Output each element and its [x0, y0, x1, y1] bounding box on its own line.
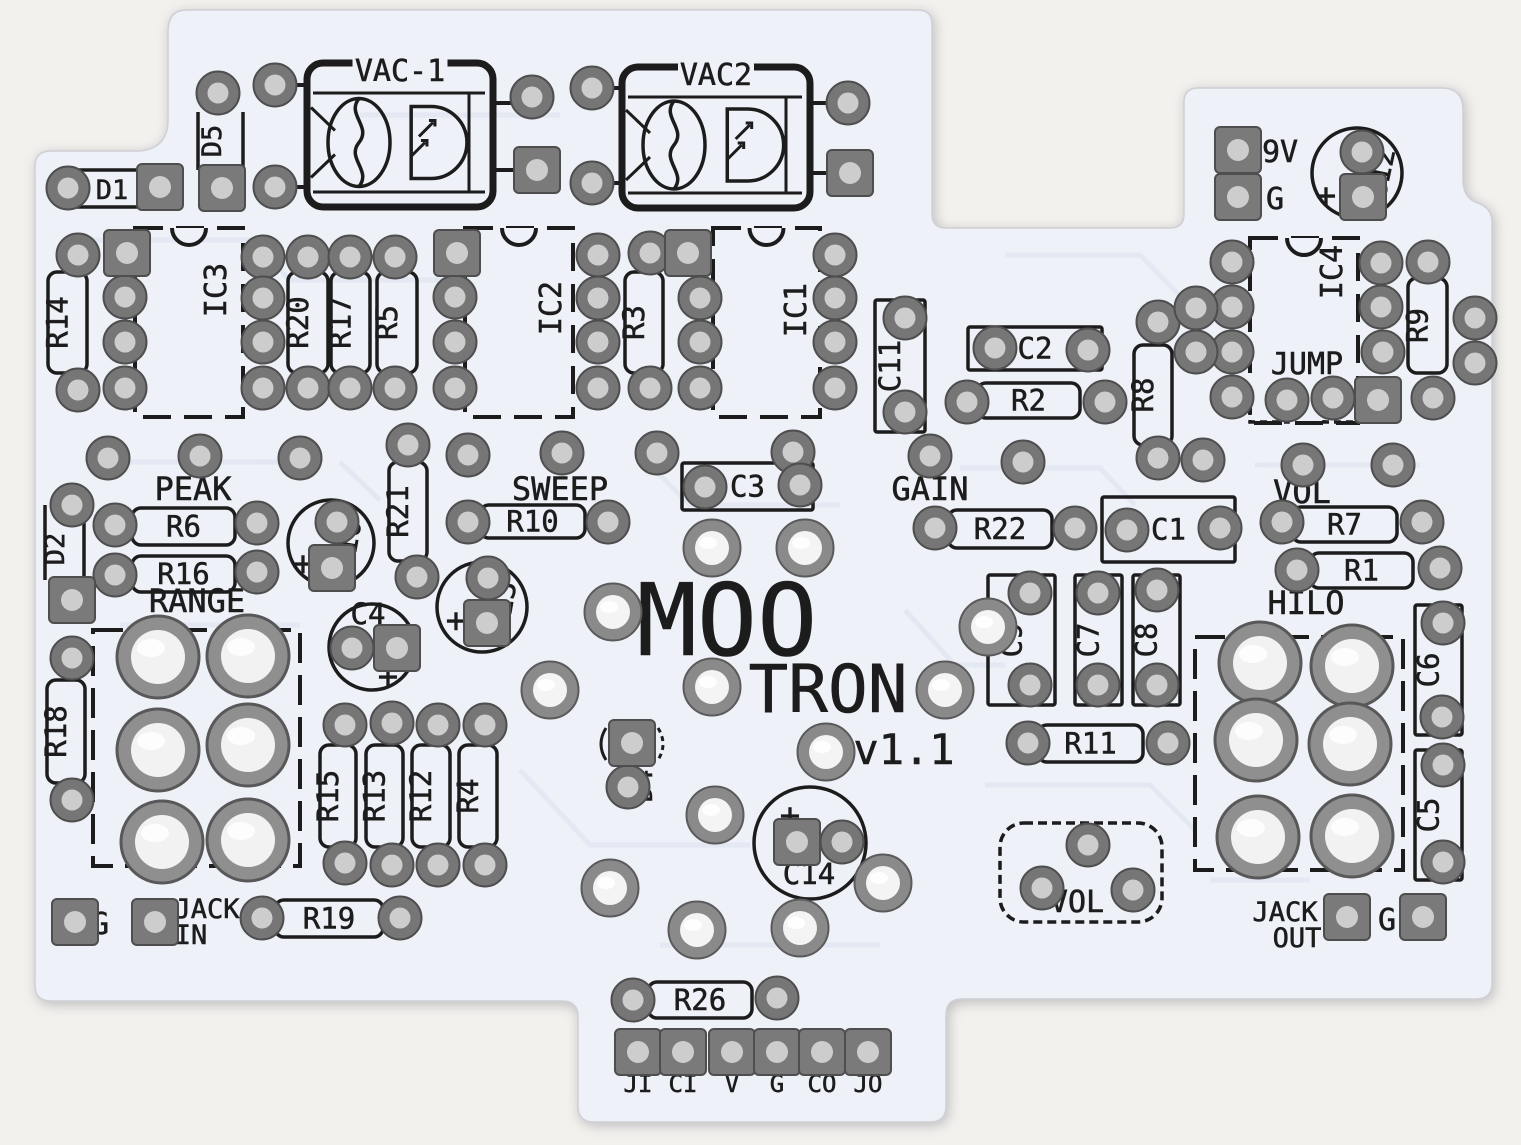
- pad-hole: [445, 287, 466, 308]
- pot-pad: [1217, 796, 1299, 878]
- pad-hole: [398, 435, 419, 456]
- pad-hole: [247, 562, 268, 583]
- pad-hole: [407, 567, 428, 588]
- pad-round: [612, 979, 655, 1022]
- pad-hole: [1233, 636, 1287, 690]
- pad-hole: [1227, 186, 1249, 208]
- resistor-label-R13: R13: [358, 770, 392, 822]
- pad-round: [1407, 241, 1450, 284]
- ic-label-IC1: IC1: [779, 283, 814, 337]
- pad-round: [464, 704, 507, 747]
- pad-round: [1341, 131, 1384, 174]
- pad-round: [1009, 572, 1052, 615]
- pad-square: [1340, 174, 1386, 220]
- pad-round: [1422, 602, 1465, 645]
- pad-hole: [1325, 809, 1379, 863]
- pad-highlight: [787, 917, 805, 929]
- resistor-label-R19: R19: [303, 902, 355, 936]
- pad-square: [464, 600, 510, 646]
- pad-round: [104, 321, 147, 364]
- pad-hole: [1231, 810, 1285, 864]
- pad-hole: [265, 177, 286, 198]
- pad-hole: [68, 245, 89, 266]
- pad-round: [279, 437, 322, 480]
- pad-round: [1002, 441, 1045, 484]
- pad-round: [827, 82, 870, 125]
- pad-square: [754, 1029, 800, 1075]
- resistor-label-R22: R22: [974, 512, 1026, 546]
- pad-round: [1084, 381, 1127, 424]
- pad-highlight: [227, 638, 255, 656]
- pad-round: [679, 277, 722, 320]
- pad-round: [329, 236, 372, 279]
- pad-round: [1211, 241, 1254, 284]
- pot-pad: [1311, 795, 1393, 877]
- pad-hole: [475, 855, 496, 876]
- pad-square: [309, 545, 355, 591]
- pad-highlight: [702, 804, 720, 816]
- pad-square: [434, 230, 480, 276]
- pad-round: [684, 466, 727, 509]
- pad-highlight: [137, 639, 165, 657]
- resistor-label-R5: R5: [370, 305, 404, 340]
- pad-square: [1215, 174, 1261, 220]
- pad-round: [884, 391, 927, 434]
- pad-hole: [428, 855, 449, 876]
- pad-highlight: [684, 919, 702, 931]
- pad-hole: [445, 378, 466, 399]
- pot-pad: [1215, 699, 1297, 781]
- pad-round: [242, 321, 285, 364]
- pad-hole: [98, 448, 119, 469]
- pad-hole: [1013, 452, 1034, 473]
- resistor-label-R8: R8: [1126, 378, 1160, 413]
- pad-hole: [766, 1041, 788, 1063]
- ic-label-IC3: IC3: [199, 263, 234, 317]
- pad-square: [660, 1029, 706, 1075]
- pad-hole: [825, 245, 846, 266]
- pad-hole: [690, 288, 711, 309]
- pad-hole: [428, 715, 449, 736]
- pad-hole: [144, 911, 166, 933]
- pad-round: [1007, 722, 1050, 765]
- pad-round: [47, 167, 90, 210]
- pad-highlight: [141, 824, 169, 842]
- pad-hole: [1383, 455, 1404, 476]
- capacitor-label-C11: C11: [873, 340, 907, 392]
- capacitor-label-C6: C6: [1412, 653, 1446, 688]
- pcb-svg: VAC-1VAC2IC3IC2IC1IC4R14R20R17R5R3R8R9R2…: [0, 0, 1521, 1145]
- pad-round: [571, 162, 614, 205]
- pad-hole: [1423, 388, 1444, 409]
- pad-square: [137, 164, 183, 210]
- pad-round: [1422, 841, 1465, 884]
- pad-hole: [920, 446, 941, 467]
- pad-round: [1422, 744, 1465, 787]
- pad-round: [1282, 444, 1325, 487]
- pad-hole: [1147, 580, 1168, 601]
- pad-hole: [1432, 707, 1453, 728]
- pad-round: [679, 321, 722, 364]
- pad-hole: [221, 629, 275, 683]
- pad-round: [1136, 664, 1179, 707]
- pad-hole: [647, 443, 668, 464]
- pad-hole: [1227, 139, 1249, 161]
- pad-hole: [321, 557, 343, 579]
- pad-hole: [290, 448, 311, 469]
- pad-hole: [131, 723, 185, 777]
- pad-round: [1137, 301, 1180, 344]
- pad-round: [629, 367, 672, 410]
- pad-round: [607, 766, 650, 809]
- resistor-label-R21: R21: [381, 485, 415, 537]
- text-SWEEP: SWEEP: [512, 470, 608, 508]
- pad-highlight: [597, 877, 615, 889]
- pad-hole: [1433, 613, 1454, 634]
- pad-round: [1360, 286, 1403, 329]
- resistor-label-R10: R10: [506, 505, 558, 539]
- pad-highlight: [932, 679, 950, 691]
- pad-round: [756, 977, 799, 1020]
- pad-round: [1199, 507, 1242, 550]
- pad-round: [236, 502, 279, 545]
- pad-round: [946, 381, 989, 424]
- pad-round: [464, 844, 507, 887]
- pad-hole: [1065, 518, 1086, 539]
- pad-square: [1215, 127, 1261, 173]
- pad-hole: [298, 378, 319, 399]
- pad-hole: [211, 177, 233, 199]
- pad-hole: [105, 515, 126, 536]
- resistor-label-R6: R6: [166, 510, 201, 544]
- resistor-label-R26: R26: [674, 983, 726, 1017]
- pad-square: [827, 150, 873, 196]
- pad-round: [1054, 507, 1097, 550]
- pad-hole: [811, 1041, 833, 1063]
- pad-hole: [695, 477, 716, 498]
- pad-round: [197, 72, 240, 115]
- pad-hole: [598, 512, 619, 533]
- pad-hole: [327, 512, 348, 533]
- pad-hole: [1352, 186, 1374, 208]
- pad-round: [434, 276, 477, 319]
- capacitor-label-C1: C1: [1151, 513, 1186, 547]
- ic-pin1-notch: [502, 228, 536, 245]
- pad-highlight: [975, 616, 993, 628]
- pad-hole: [1117, 520, 1138, 541]
- pad-hole: [783, 442, 804, 463]
- pad-hole: [1018, 733, 1039, 754]
- pad-hole: [62, 790, 83, 811]
- pad-round: [1021, 867, 1064, 910]
- pad-hole: [857, 1041, 879, 1063]
- pad-round: [417, 844, 460, 887]
- pad-square: [615, 1029, 661, 1075]
- diode-label-D2: D2: [40, 533, 71, 566]
- pad-round: [1175, 331, 1218, 374]
- pad-hole: [1078, 340, 1099, 361]
- pad-hole: [382, 855, 403, 876]
- pad-hole: [61, 589, 83, 611]
- pad-round: [571, 67, 614, 110]
- resistor-label-R17: R17: [324, 296, 358, 348]
- pad-highlight: [137, 732, 165, 750]
- pad-square: [609, 720, 655, 766]
- pad-highlight: [1235, 722, 1263, 740]
- pad-highlight: [699, 537, 717, 549]
- pad-round: [1211, 376, 1254, 419]
- pad-square: [199, 165, 245, 211]
- pad-hole: [386, 637, 408, 659]
- opto-label-VAC2: VAC2: [680, 58, 752, 93]
- pad-bright: [684, 520, 741, 577]
- pad-hole: [1336, 906, 1358, 928]
- pad-hole: [1433, 755, 1454, 776]
- pad-round: [417, 704, 460, 747]
- pot-pad: [207, 704, 289, 786]
- pad-hole: [1095, 392, 1116, 413]
- resistor-label-R14: R14: [41, 296, 75, 348]
- pad-square: [709, 1029, 755, 1075]
- pad-round: [1401, 501, 1444, 544]
- pad-round: [1362, 331, 1405, 374]
- pad-hole: [340, 378, 361, 399]
- pad-round: [974, 327, 1017, 370]
- pad-round: [1175, 287, 1218, 330]
- pad-round: [331, 627, 374, 670]
- plus-polarity-mark: +: [1316, 176, 1336, 216]
- pot-pad: [117, 616, 199, 698]
- pad-hole: [623, 990, 644, 1011]
- pad-hole: [68, 380, 89, 401]
- pad-square: [374, 625, 420, 671]
- pad-hole: [1272, 512, 1293, 533]
- pad-round: [636, 432, 679, 475]
- pad-round: [94, 504, 137, 547]
- pad-hole: [62, 495, 83, 516]
- pad-hole: [640, 378, 661, 399]
- pad-round: [387, 424, 430, 467]
- pad-round: [541, 432, 584, 475]
- pad-hole: [1412, 512, 1433, 533]
- pad-hole: [190, 446, 211, 467]
- resistor-label-R7: R7: [1327, 508, 1362, 542]
- text-OUT: OUT: [1273, 923, 1322, 954]
- capacitor-label-C2: C2: [1018, 332, 1053, 366]
- pad-round: [577, 367, 620, 410]
- pad-hole: [116, 242, 138, 264]
- pad-hole: [838, 93, 859, 114]
- text-G: G: [1266, 182, 1284, 217]
- pad-round: [587, 501, 630, 544]
- pad-hole: [478, 568, 499, 589]
- pad-hole: [767, 988, 788, 1009]
- pad-round: [821, 821, 864, 864]
- pad-round: [104, 276, 147, 319]
- pad-round: [1112, 869, 1155, 912]
- pot-pad: [1311, 625, 1393, 707]
- pad-hole: [208, 83, 229, 104]
- pad-hole: [1371, 297, 1392, 318]
- pad-round: [371, 702, 414, 745]
- pad-round: [242, 236, 285, 279]
- pad-hole: [839, 162, 861, 184]
- pad-hole: [895, 308, 916, 329]
- pad-hole: [390, 908, 411, 929]
- pad-round: [1067, 824, 1110, 867]
- pad-hole: [221, 718, 275, 772]
- pad-hole: [446, 242, 468, 264]
- pad-round: [87, 437, 130, 480]
- pad-hole: [985, 338, 1006, 359]
- pad-round: [1454, 342, 1497, 385]
- pad-round: [242, 367, 285, 410]
- pad-hole: [1222, 252, 1243, 273]
- pad-round: [577, 277, 620, 320]
- pad-hole: [1418, 252, 1439, 273]
- pad-highlight: [792, 537, 810, 549]
- pad-hole: [690, 378, 711, 399]
- pad-hole: [1158, 733, 1179, 754]
- pad-highlight: [1237, 819, 1265, 837]
- pad-hole: [588, 378, 609, 399]
- pad-round: [1454, 297, 1497, 340]
- pad-hole: [1325, 639, 1379, 693]
- pad-round: [814, 277, 857, 320]
- pad-hole: [382, 713, 403, 734]
- pad-highlight: [1239, 645, 1267, 663]
- pad-hole: [265, 75, 286, 96]
- pad-highlight: [227, 822, 255, 840]
- pad-hole: [1088, 583, 1109, 604]
- resistor-label-R4: R4: [451, 779, 485, 814]
- pad-round: [1067, 329, 1110, 372]
- resistor-label-R20: R20: [281, 296, 315, 348]
- pad-round: [254, 166, 297, 209]
- pad-hole: [582, 173, 603, 194]
- pad-bright: [777, 520, 834, 577]
- resistor-label-R11: R11: [1064, 727, 1116, 761]
- pad-round: [1372, 444, 1415, 487]
- pad-hole: [618, 777, 639, 798]
- pad-hole: [253, 247, 274, 268]
- resistor-label-R1: R1: [1344, 554, 1379, 588]
- pad-hole: [1293, 455, 1314, 476]
- ic-label-IC2: IC2: [534, 281, 569, 335]
- pad-hole: [298, 247, 319, 268]
- pad-hole: [131, 630, 185, 684]
- pad-bright: [855, 855, 912, 912]
- pad-hole: [253, 378, 274, 399]
- pad-hole: [252, 908, 273, 929]
- pad-bright: [772, 900, 829, 957]
- pad-bright: [917, 662, 974, 719]
- pad-hole: [1277, 390, 1298, 411]
- pad-hole: [1430, 558, 1451, 579]
- pad-hole: [115, 287, 136, 308]
- pad-round: [94, 554, 137, 597]
- pad-round: [434, 367, 477, 410]
- pad-round: [1077, 572, 1120, 615]
- pad-hole: [64, 911, 86, 933]
- pad-hole: [1323, 388, 1344, 409]
- pad-round: [51, 484, 94, 527]
- pad-round: [1360, 242, 1403, 285]
- pad-square: [49, 577, 95, 623]
- text-TRON: TRON: [749, 651, 908, 728]
- pad-round: [1421, 696, 1464, 739]
- pad-hole: [385, 378, 406, 399]
- pad-hole: [1078, 835, 1099, 856]
- pad-round: [1276, 549, 1319, 592]
- pad-round: [814, 234, 857, 277]
- pad-round: [241, 897, 284, 940]
- pad-hole: [135, 815, 189, 869]
- pad-round: [1182, 439, 1225, 482]
- resistor-label-R12: R12: [404, 770, 438, 822]
- pad-hole: [247, 513, 268, 534]
- ic-pin1-notch: [172, 228, 206, 245]
- pcb-scan: VAC-1VAC2IC3IC2IC1IC4R14R20R17R5R3R8R9R2…: [0, 0, 1521, 1145]
- pad-hole: [1148, 312, 1169, 333]
- pad-round: [577, 234, 620, 277]
- pad-round: [324, 842, 367, 885]
- pot-pad: [121, 801, 203, 883]
- pad-round: [467, 557, 510, 600]
- pad-hole: [62, 648, 83, 669]
- pad-hole: [1323, 717, 1377, 771]
- pad-round: [1147, 722, 1190, 765]
- pad-highlight: [600, 601, 618, 613]
- pad-hole: [1433, 852, 1454, 873]
- pad-hole: [115, 332, 136, 353]
- pad-hole: [552, 443, 573, 464]
- pad-hole: [1147, 675, 1168, 696]
- pad-hole: [672, 1041, 694, 1063]
- text-v1.1: v1.1: [853, 725, 954, 774]
- pad-hole: [1222, 387, 1243, 408]
- pad-hole: [335, 715, 356, 736]
- pad-hole: [582, 78, 603, 99]
- pad-round: [1412, 377, 1455, 420]
- pad-bright: [687, 787, 744, 844]
- pad-square: [1400, 894, 1446, 940]
- pad-round: [814, 367, 857, 410]
- pot-pad: [207, 799, 289, 881]
- pad-round: [287, 236, 330, 279]
- pad-round: [447, 501, 490, 544]
- pad-hole: [253, 288, 274, 309]
- pad-round: [679, 367, 722, 410]
- pad-square: [845, 1029, 891, 1075]
- pad-round: [329, 367, 372, 410]
- pad-round: [396, 556, 439, 599]
- pad-highlight: [1329, 726, 1357, 744]
- pad-bright: [684, 659, 741, 716]
- pad-round: [1419, 547, 1462, 590]
- pad-hole: [1032, 878, 1053, 899]
- pad-hole: [1465, 353, 1486, 374]
- text-IN: IN: [175, 920, 208, 951]
- resistor-label-R15: R15: [311, 770, 345, 822]
- resistor-label-R3: R3: [617, 305, 651, 340]
- pad-hole: [925, 518, 946, 539]
- pad-hole: [445, 332, 466, 353]
- pad-round: [371, 844, 414, 887]
- resistor-label-R18: R18: [39, 705, 73, 757]
- pad-hole: [721, 1041, 743, 1063]
- pad-hole: [786, 831, 808, 853]
